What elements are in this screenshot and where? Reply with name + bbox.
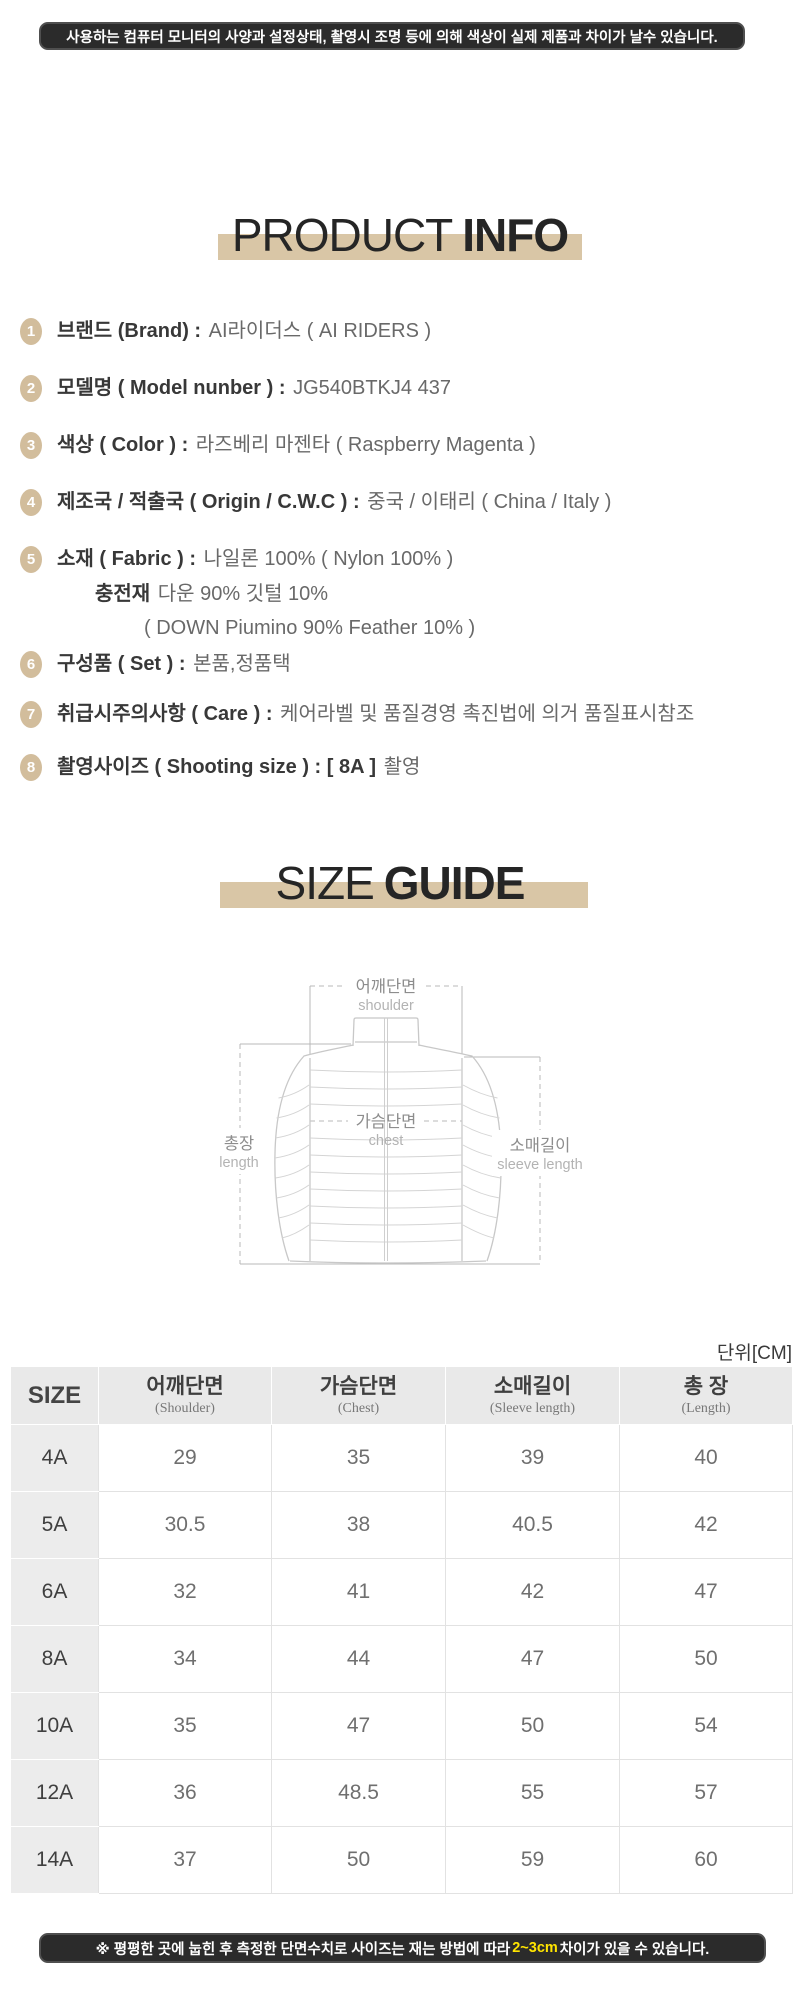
- cell-length: 57: [620, 1760, 793, 1827]
- product-info-section-title: PRODUCTINFO: [0, 210, 800, 266]
- jacket-left-sleeve: [275, 1045, 353, 1261]
- cell-chest: 50: [272, 1827, 446, 1894]
- item-value: 본품,정품택: [193, 653, 291, 675]
- item-label: 구성품 ( Set ) :: [57, 653, 191, 675]
- cell-shoulder: 37: [99, 1827, 272, 1894]
- row-size-label: 12A: [11, 1760, 99, 1827]
- header-shoulder: 어깨단면(Shoulder): [99, 1367, 272, 1425]
- list-item-model: 2 모델명 ( Model nunber ) : JG540BTKJ4 437: [20, 374, 792, 402]
- item-label: 취급시주의사항 ( Care ) :: [57, 703, 278, 725]
- cell-length: 47: [620, 1559, 793, 1626]
- shoulder-label-en: shoulder: [358, 998, 414, 1014]
- table-row: 10A 35 47 50 54: [11, 1693, 793, 1760]
- table-row: 6A 32 41 42 47: [11, 1559, 793, 1626]
- item-number-badge: 8: [20, 754, 42, 781]
- notice-text: 사용하는 컴퓨터 모니터의 사양과 설정상태, 촬영시 조명 등에 의해 색상이…: [66, 26, 717, 47]
- size-guide-section-title: SIZEGUIDE: [0, 858, 800, 914]
- item-value: 나일론 100% ( Nylon 100% ): [204, 548, 454, 570]
- jacket-right-sleeve: [419, 1045, 501, 1261]
- header-sleeve: 소매길이(Sleeve length): [446, 1367, 620, 1425]
- row-size-label: 8A: [11, 1626, 99, 1693]
- cell-sleeve: 42: [446, 1559, 620, 1626]
- header-chest: 가슴단면(Chest): [272, 1367, 446, 1425]
- notice-prefix: ※ 평평한 곳에 눕힌 후 측정한 단면수치로 사이즈는 재는 방법에 따라: [96, 1938, 511, 1959]
- item-number-badge: 3: [20, 432, 42, 459]
- chest-label-en: chest: [369, 1133, 404, 1149]
- item-value: 라즈베리 마젠타 ( Raspberry Magenta ): [196, 434, 536, 456]
- product-info-list: 1 브랜드 (Brand) : AI라이더스 ( AI RIDERS ) 2 모…: [20, 317, 792, 810]
- jacket-hem: [290, 1261, 486, 1263]
- jacket-measurement-diagram: 어깨단면 shoulder 가슴단면 chest 총장 length 소매길이 …: [190, 958, 590, 1278]
- cell-sleeve: 50: [446, 1693, 620, 1760]
- list-item-brand: 1 브랜드 (Brand) : AI라이더스 ( AI RIDERS ): [20, 317, 792, 345]
- list-item-care: 7 취급시주의사항 ( Care ) : 케어라벨 및 품질경영 촉진법에 의거…: [20, 700, 792, 728]
- item-label: 모델명 ( Model nunber ) :: [57, 377, 291, 399]
- row-size-label: 10A: [11, 1693, 99, 1760]
- monitor-color-notice-banner: 사용하는 컴퓨터 모니터의 사양과 설정상태, 촬영시 조명 등에 의해 색상이…: [39, 22, 745, 50]
- cell-shoulder: 32: [99, 1559, 272, 1626]
- item-label: 소재 ( Fabric ) :: [57, 548, 202, 570]
- list-item-color: 3 색상 ( Color ) : 라즈베리 마젠타 ( Raspberry Ma…: [20, 431, 792, 459]
- cell-sleeve: 47: [446, 1626, 620, 1693]
- section-title-text: PRODUCTINFO: [0, 210, 800, 260]
- item-label: 브랜드 (Brand) :: [57, 320, 207, 342]
- product-detail-page: 사용하는 컴퓨터 모니터의 사양과 설정상태, 촬영시 조명 등에 의해 색상이…: [0, 0, 800, 1997]
- item-value: AI라이더스 ( AI RIDERS ): [209, 320, 432, 342]
- item-value: 촬영: [378, 756, 420, 778]
- row-size-label: 5A: [11, 1492, 99, 1559]
- cell-sleeve: 39: [446, 1425, 620, 1492]
- cell-sleeve: 55: [446, 1760, 620, 1827]
- item-value-bold: [ 8A ]: [327, 756, 376, 778]
- fabric-filling-line-en: ( DOWN Piumino 90% Feather 10% ): [57, 614, 475, 642]
- row-size-label: 6A: [11, 1559, 99, 1626]
- list-item-origin: 4 제조국 / 적출국 ( Origin / C.W.C ) : 중국 / 이태…: [20, 488, 792, 516]
- cell-shoulder: 36: [99, 1760, 272, 1827]
- item-number-badge: 1: [20, 318, 42, 345]
- cell-length: 42: [620, 1492, 793, 1559]
- title-word-info: INFO: [462, 209, 568, 261]
- cell-shoulder: 35: [99, 1693, 272, 1760]
- cell-chest: 48.5: [272, 1760, 446, 1827]
- list-item-set: 6 구성품 ( Set ) : 본품,정품택: [20, 650, 792, 678]
- cell-length: 54: [620, 1693, 793, 1760]
- table-row: 4A 29 35 39 40: [11, 1425, 793, 1492]
- title-word-size: SIZE: [276, 857, 374, 909]
- item-label: 색상 ( Color ) :: [57, 434, 194, 456]
- item-value: JG540BTKJ4 437: [293, 377, 451, 399]
- cell-chest: 35: [272, 1425, 446, 1492]
- sleeve-label-ko: 소매길이: [510, 1136, 571, 1155]
- shoulder-label-ko: 어깨단면: [356, 977, 417, 996]
- length-label-en: length: [219, 1155, 259, 1171]
- table-row: 12A 36 48.5 55 57: [11, 1760, 793, 1827]
- item-value: 케어라벨 및 품질경영 촉진법에 의거 품질표시참조: [280, 703, 694, 725]
- cell-length: 60: [620, 1827, 793, 1894]
- notice-highlight: 2~3cm: [512, 1940, 558, 1956]
- cell-chest: 47: [272, 1693, 446, 1760]
- jacket-diagram-svg: 어깨단면 shoulder 가슴단면 chest 총장 length 소매길이 …: [190, 958, 590, 1278]
- cell-chest: 41: [272, 1559, 446, 1626]
- cell-length: 40: [620, 1425, 793, 1492]
- length-label-ko: 총장: [224, 1134, 254, 1153]
- item-number-badge: 5: [20, 546, 42, 573]
- item-number-badge: 2: [20, 375, 42, 402]
- measurement-tolerance-banner: ※ 평평한 곳에 눕힌 후 측정한 단면수치로 사이즈는 재는 방법에 따라 2…: [39, 1933, 766, 1963]
- table-row: 8A 34 44 47 50: [11, 1626, 793, 1693]
- chest-label-ko: 가슴단면: [356, 1112, 417, 1131]
- cell-shoulder: 30.5: [99, 1492, 272, 1559]
- cell-chest: 44: [272, 1626, 446, 1693]
- size-table: SIZE 어깨단면(Shoulder) 가슴단면(Chest) 소매길이(Sle…: [10, 1366, 793, 1894]
- cell-sleeve: 40.5: [446, 1492, 620, 1559]
- cell-sleeve: 59: [446, 1827, 620, 1894]
- list-item-fabric: 5 소재 ( Fabric ) : 나일론 100% ( Nylon 100% …: [20, 545, 792, 642]
- table-row: 14A 37 50 59 60: [11, 1827, 793, 1894]
- sleeve-label-en: sleeve length: [497, 1157, 582, 1173]
- unit-cm-label: 단위[CM]: [717, 1338, 792, 1365]
- cell-shoulder: 29: [99, 1425, 272, 1492]
- section-title-text: SIZEGUIDE: [0, 858, 800, 908]
- cell-chest: 38: [272, 1492, 446, 1559]
- item-label: 촬영사이즈 ( Shooting size ) :: [57, 756, 327, 778]
- table-row: 5A 30.5 38 40.5 42: [11, 1492, 793, 1559]
- header-size: SIZE: [11, 1367, 99, 1425]
- item-number-badge: 4: [20, 489, 42, 516]
- cell-shoulder: 34: [99, 1626, 272, 1693]
- item-value: 중국 / 이태리 ( China / Italy ): [367, 491, 611, 513]
- list-item-shooting-size: 8 촬영사이즈 ( Shooting size ) : [ 8A ] 촬영: [20, 753, 792, 781]
- item-number-badge: 7: [20, 701, 42, 728]
- title-word-product: PRODUCT: [232, 209, 452, 261]
- header-length: 총 장(Length): [620, 1367, 793, 1425]
- row-size-label: 4A: [11, 1425, 99, 1492]
- title-word-guide: GUIDE: [384, 857, 525, 909]
- item-number-badge: 6: [20, 651, 42, 678]
- fabric-filling-line: 충전재 다운 90% 깃털 10%: [57, 580, 475, 608]
- item-label: 제조국 / 적출국 ( Origin / C.W.C ) :: [57, 491, 365, 513]
- size-table-header-row: SIZE 어깨단면(Shoulder) 가슴단면(Chest) 소매길이(Sle…: [11, 1367, 793, 1425]
- cell-length: 50: [620, 1626, 793, 1693]
- notice-suffix: 차이가 있을 수 있습니다.: [560, 1938, 710, 1959]
- row-size-label: 14A: [11, 1827, 99, 1894]
